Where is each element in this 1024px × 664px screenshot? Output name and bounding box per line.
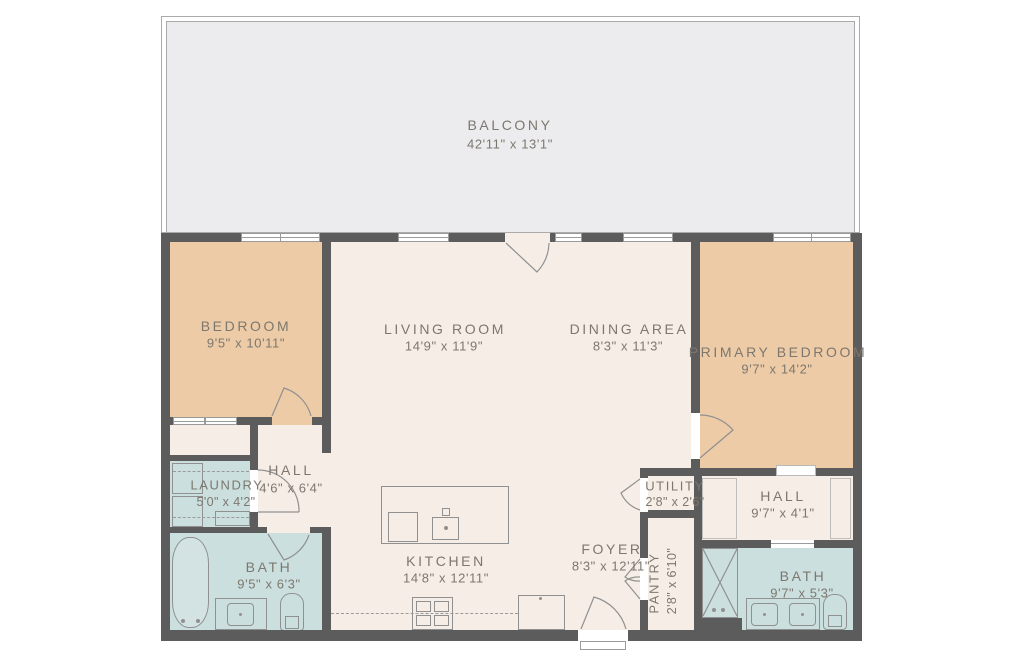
shower	[702, 548, 738, 618]
wall	[322, 242, 331, 453]
room-label-balcony: BALCONY	[467, 117, 552, 133]
room-dims-kitchen: 14'8" x 12'11"	[403, 571, 489, 586]
window	[811, 233, 851, 242]
dishwasher	[388, 512, 418, 542]
room-dims-bedroom: 9'5" x 10'11"	[207, 336, 285, 351]
room-label-hall-left: HALL	[268, 462, 313, 478]
hall-closet	[830, 478, 851, 539]
window	[623, 233, 673, 242]
room-dims-hall-left: 4'6" x 6'4"	[259, 481, 322, 496]
window	[241, 233, 281, 242]
window	[280, 233, 320, 242]
window	[398, 233, 449, 242]
toilet-tank	[285, 616, 299, 629]
kitchen-faucet	[442, 508, 450, 516]
room-dims-bath-left: 9'5" x 6'3"	[237, 577, 300, 592]
room-dims-living-room: 14'9" x 11'9"	[405, 339, 483, 354]
bath-right-pocket-opening	[771, 540, 814, 548]
room-label-bath-right: BATH	[780, 568, 827, 584]
sink-drain	[444, 526, 448, 530]
wall	[161, 630, 862, 641]
wall	[694, 618, 742, 630]
window	[773, 233, 812, 242]
sink-drain	[801, 613, 804, 616]
wall	[640, 510, 702, 518]
room-label-living-room: LIVING ROOM	[384, 321, 506, 337]
room-label-pantry: PANTRY	[647, 552, 662, 613]
hall-cased-opening	[776, 465, 816, 476]
room-dims-balcony: 42'11" x 13'1"	[467, 137, 553, 152]
room-label-utility: UTILITY	[645, 479, 705, 494]
room-label-bath-left: BATH	[246, 559, 293, 575]
wall	[853, 233, 862, 641]
room-dims-utility: 2'8" x 2'6"	[645, 495, 704, 509]
room-dims-laundry: 5'0" x 4'2"	[196, 495, 255, 509]
room-label-laundry: LAUNDRY	[190, 478, 263, 493]
bathtub	[172, 537, 209, 628]
wall	[170, 455, 250, 461]
entry-door-opening	[578, 630, 628, 641]
room-dims-foyer: 8'3" x 12'11"	[572, 559, 650, 574]
toilet-tank	[828, 615, 842, 627]
pocket-door	[771, 543, 814, 544]
wall	[322, 533, 331, 630]
burner	[416, 601, 431, 612]
laundry-shelf	[215, 511, 250, 526]
tub-faucet	[196, 619, 200, 623]
bath-left-door-opening	[267, 527, 310, 533]
burner	[434, 601, 449, 612]
laundry-dashed-line	[173, 471, 249, 472]
primary-bedroom-door-opening	[691, 413, 700, 459]
room-dims-pantry: 2'8" x 6'10"	[665, 548, 679, 614]
sink-drain	[763, 613, 766, 616]
closet-slider-door	[205, 417, 237, 425]
closet-slider-door	[173, 417, 205, 425]
refrigerator-handle	[539, 597, 542, 600]
burner	[434, 615, 449, 626]
window	[555, 233, 582, 242]
entry-threshold	[580, 641, 626, 650]
room-dims-primary-bedroom: 9'7" x 14'2"	[741, 362, 812, 377]
shower-valve	[721, 608, 725, 612]
room-dims-bath-right: 9'7" x 5'3"	[770, 586, 833, 601]
burner	[416, 615, 431, 626]
sink-drain	[239, 613, 242, 616]
hall-closet	[702, 478, 737, 539]
room-label-kitchen: KITCHEN	[406, 553, 486, 569]
wall	[161, 233, 170, 641]
room-label-foyer: FOYER	[581, 541, 642, 557]
bedroom-door-opening	[272, 417, 312, 425]
wall	[640, 468, 703, 476]
tub-faucet	[181, 619, 185, 623]
shower-valve	[712, 608, 716, 612]
room-label-primary-bedroom: PRIMARY BEDROOM	[689, 344, 868, 360]
room-label-dining-area: DINING AREA	[570, 321, 689, 337]
refrigerator	[518, 595, 565, 630]
room-dims-hall-right: 9'7" x 4'1"	[751, 506, 814, 521]
balcony-door-opening	[505, 233, 550, 242]
floor-plan: BALCONY 42'11" x 13'1" BEDROOM 9'5" x 10…	[0, 0, 1024, 664]
room-label-hall-right: HALL	[760, 488, 805, 504]
room-label-bedroom: BEDROOM	[201, 318, 292, 334]
room-dims-dining-area: 8'3" x 11'3"	[593, 339, 663, 354]
